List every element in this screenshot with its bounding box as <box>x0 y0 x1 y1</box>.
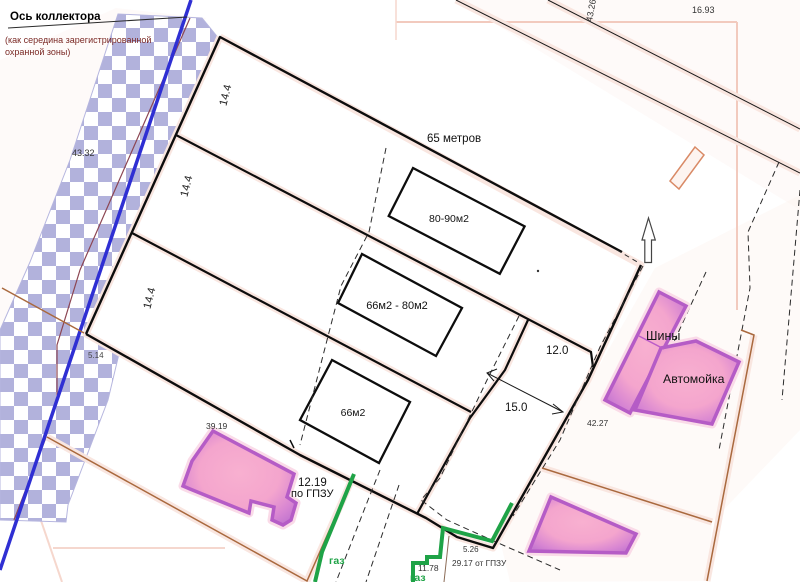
svg-text:Ось коллектора: Ось коллектора <box>10 11 101 23</box>
svg-text:(как середина зарегистрированн: (как середина зарегистрированной <box>5 35 151 45</box>
svg-text:42.27: 42.27 <box>587 418 609 428</box>
svg-text:по ГПЗУ: по ГПЗУ <box>291 488 335 500</box>
svg-text:5.14: 5.14 <box>88 351 104 360</box>
svg-text:29.17 от ГПЗУ: 29.17 от ГПЗУ <box>452 558 507 568</box>
svg-text:охранной зоны): охранной зоны) <box>5 47 70 57</box>
svg-text:15.0: 15.0 <box>505 402 527 414</box>
svg-text:газ: газ <box>329 555 345 567</box>
svg-text:66м2 - 80м2: 66м2 - 80м2 <box>366 300 428 312</box>
svg-text:Автомойка: Автомойка <box>663 372 725 386</box>
svg-text:5.26: 5.26 <box>463 545 479 554</box>
svg-text:12.0: 12.0 <box>546 345 568 357</box>
svg-text:43.32: 43.32 <box>72 148 95 158</box>
svg-text:16.93: 16.93 <box>692 5 715 15</box>
svg-text:Шины: Шины <box>646 329 680 343</box>
svg-text:39.19: 39.19 <box>206 421 228 431</box>
svg-text:65 метров: 65 метров <box>427 133 481 145</box>
svg-text:66м2: 66м2 <box>341 407 366 419</box>
svg-text:газ: газ <box>410 572 426 582</box>
svg-text:80-90м2: 80-90м2 <box>429 213 469 225</box>
